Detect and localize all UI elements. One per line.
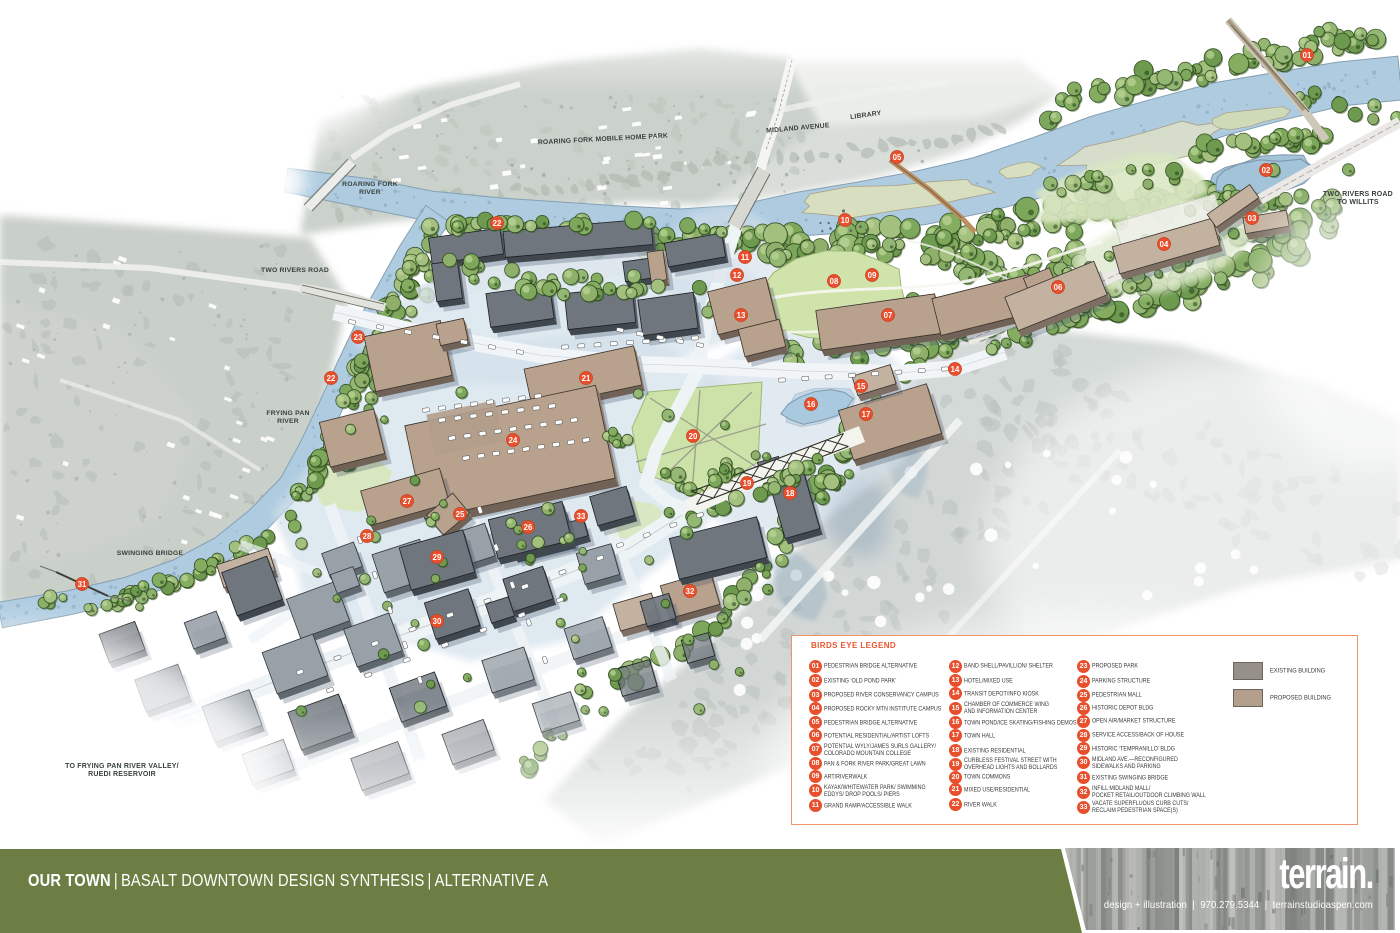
svg-text:12: 12 [733, 271, 742, 280]
svg-text:03: 03 [1248, 214, 1257, 223]
svg-text:17: 17 [862, 410, 871, 419]
svg-text:27: 27 [403, 497, 412, 506]
svg-text:05: 05 [893, 153, 902, 162]
svg-text:SWINGING BRIDGE: SWINGING BRIDGE [117, 550, 184, 557]
svg-text:02: 02 [1262, 166, 1271, 175]
svg-text:25: 25 [456, 510, 465, 519]
svg-text:21: 21 [582, 374, 591, 383]
svg-text:11: 11 [741, 253, 750, 262]
svg-text:13: 13 [737, 311, 746, 320]
svg-text:28: 28 [363, 532, 372, 541]
svg-text:04: 04 [1160, 240, 1169, 249]
svg-text:24: 24 [509, 436, 518, 445]
svg-text:16: 16 [807, 400, 816, 409]
svg-text:18: 18 [786, 489, 795, 498]
svg-text:33: 33 [577, 512, 586, 521]
svg-text:30: 30 [433, 617, 442, 626]
svg-text:06: 06 [1054, 283, 1063, 292]
svg-text:26: 26 [524, 523, 533, 532]
svg-text:01: 01 [1303, 51, 1312, 60]
svg-text:32: 32 [686, 587, 695, 596]
svg-text:20: 20 [689, 432, 698, 441]
svg-text:19: 19 [743, 479, 752, 488]
svg-text:08: 08 [830, 277, 839, 286]
svg-text:15: 15 [857, 382, 866, 391]
svg-text:22: 22 [327, 374, 336, 383]
svg-text:31: 31 [78, 580, 87, 589]
svg-text:09: 09 [868, 271, 877, 280]
svg-text:14: 14 [951, 365, 960, 374]
svg-text:22: 22 [493, 219, 502, 228]
svg-text:23: 23 [354, 333, 363, 342]
svg-text:TWO RIVERS ROAD: TWO RIVERS ROAD [261, 267, 329, 274]
svg-text:07: 07 [884, 311, 893, 320]
svg-text:10: 10 [841, 216, 850, 225]
svg-text:29: 29 [433, 553, 442, 562]
